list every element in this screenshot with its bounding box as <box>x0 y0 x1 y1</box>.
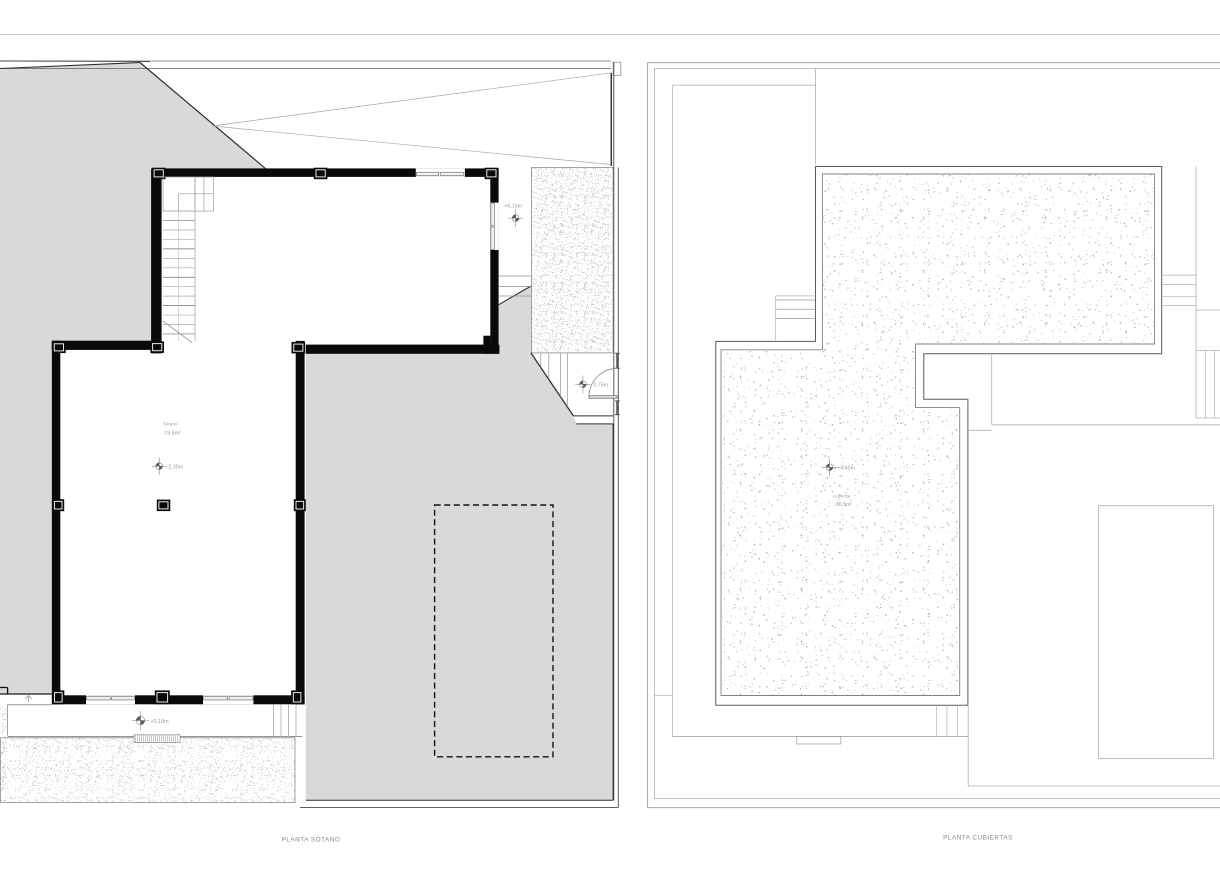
svg-text:+4,40m: +4,40m <box>837 466 856 472</box>
svg-text:+0,16m: +0,16m <box>505 204 522 210</box>
svg-text:36,5m²: 36,5m² <box>836 502 852 508</box>
svg-text:19,6m²: 19,6m² <box>164 430 181 436</box>
svg-text:+0,18m: +0,18m <box>151 719 170 725</box>
svg-text:PLANTA SÓTANO: PLANTA SÓTANO <box>282 835 341 844</box>
svg-text:Sótano: Sótano <box>163 421 178 426</box>
svg-text:PLANTA CUBIERTAS: PLANTA CUBIERTAS <box>943 835 1013 842</box>
svg-text:-2,35m: -2,35m <box>167 465 184 471</box>
svg-text:0,75m: 0,75m <box>594 383 608 389</box>
svg-text:Cubierta: Cubierta <box>833 494 851 499</box>
